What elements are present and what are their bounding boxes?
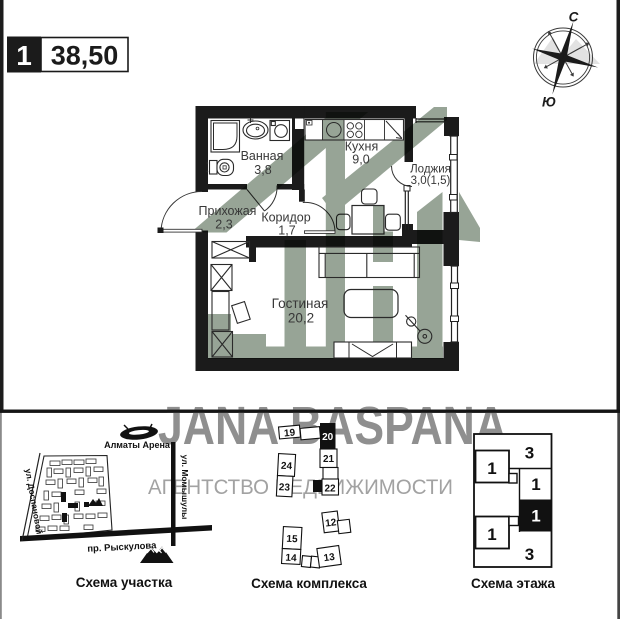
svg-text:1,7: 1,7 — [278, 224, 295, 238]
svg-text:Кухня: Кухня — [345, 140, 378, 154]
svg-text:19: 19 — [284, 428, 296, 440]
svg-text:13: 13 — [323, 552, 336, 565]
svg-text:Лоджия: Лоджия — [410, 164, 451, 176]
svg-text:14: 14 — [285, 553, 297, 565]
svg-text:38,50: 38,50 — [51, 41, 119, 71]
svg-text:Гостиная: Гостиная — [272, 296, 329, 311]
svg-text:ул. Момышулы: ул. Момышулы — [180, 455, 190, 520]
svg-text:1: 1 — [487, 525, 496, 544]
svg-text:Схема этажа: Схема этажа — [471, 576, 555, 591]
svg-text:21: 21 — [323, 454, 335, 465]
svg-text:1: 1 — [531, 507, 540, 526]
svg-text:22: 22 — [324, 484, 336, 495]
svg-text:2,3: 2,3 — [215, 218, 232, 232]
svg-text:20: 20 — [322, 432, 334, 443]
svg-text:Схема участка: Схема участка — [76, 575, 173, 590]
svg-text:Ю: Ю — [542, 95, 556, 110]
svg-text:23: 23 — [278, 482, 290, 494]
svg-text:Алматы Арена: Алматы Арена — [104, 440, 171, 450]
svg-text:15: 15 — [286, 534, 298, 546]
svg-text:С: С — [569, 10, 579, 25]
svg-text:12: 12 — [325, 517, 338, 529]
svg-text:9,0: 9,0 — [352, 153, 369, 167]
svg-text:АГЕНТСТВО НЕДВИЖИМОСТИ: АГЕНТСТВО НЕДВИЖИМОСТИ — [148, 475, 453, 499]
svg-text:3,8: 3,8 — [254, 163, 271, 177]
svg-text:Прихожая: Прихожая — [199, 204, 257, 218]
svg-text:Ванная: Ванная — [241, 149, 284, 163]
svg-text:3: 3 — [525, 545, 534, 564]
svg-text:Коридор: Коридор — [261, 211, 310, 225]
svg-text:1: 1 — [487, 459, 496, 478]
svg-text:1: 1 — [531, 475, 540, 494]
svg-text:24: 24 — [281, 461, 293, 473]
svg-text:3,0(1,5): 3,0(1,5) — [411, 175, 451, 187]
svg-text:20,2: 20,2 — [288, 311, 314, 326]
svg-text:3: 3 — [525, 444, 534, 463]
svg-text:1: 1 — [16, 40, 32, 71]
svg-text:Схема комплекса: Схема комплекса — [251, 576, 367, 591]
